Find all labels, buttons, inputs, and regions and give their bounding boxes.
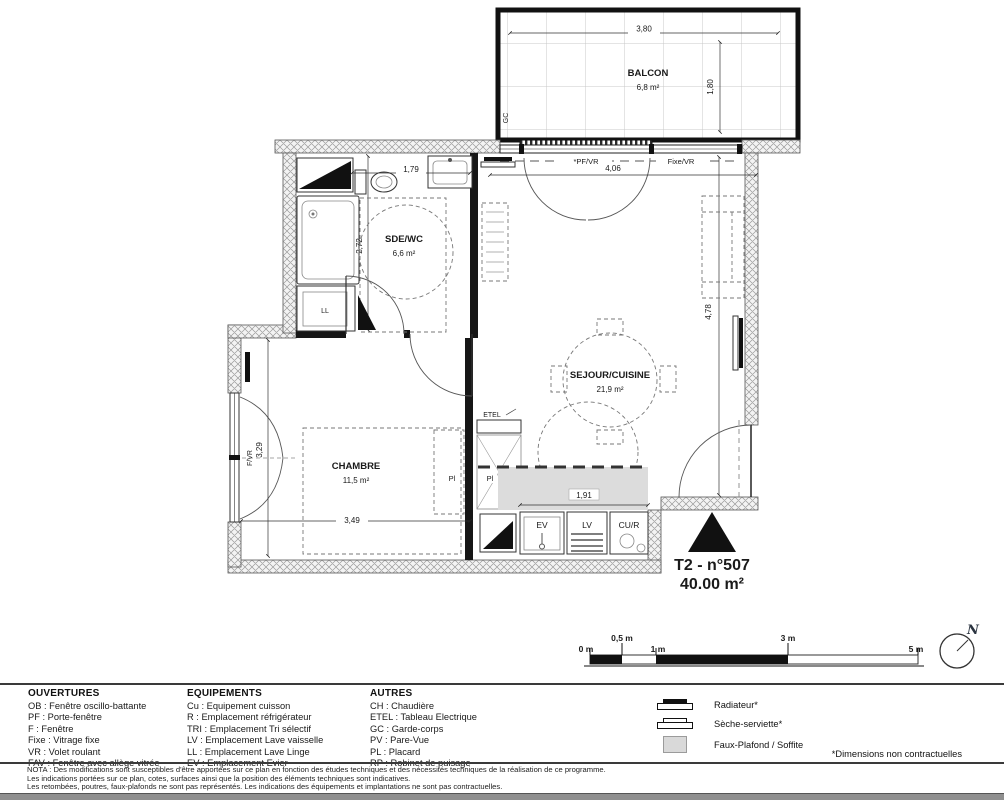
sofa xyxy=(702,196,744,298)
scale-05: 0,5 m xyxy=(611,633,633,643)
title-block: T2 - n°507 40.00 m² xyxy=(674,512,750,593)
door-swing-left xyxy=(524,158,586,220)
nota-footer: NOTA : Des modifications sont susceptibl… xyxy=(27,766,994,792)
sde-area: 6,6 m² xyxy=(393,249,416,258)
closet xyxy=(434,430,464,514)
legend-equipements: EQUIPEMENTS Cu : Equipement cuisson R : … xyxy=(187,688,323,769)
nota-line: Les retombées, poutres, faux-plafonds ne… xyxy=(27,783,994,792)
bathroom: 1,79 2,72 SDE/WC 6,6 m² LL xyxy=(297,156,472,334)
balcony-label: BALCON xyxy=(628,68,669,79)
legend-header: EQUIPEMENTS xyxy=(187,688,323,699)
legend-header: AUTRES xyxy=(370,688,477,699)
legend-item: LL : Emplacement Lave Linge xyxy=(187,747,323,758)
legend-autres: AUTRES CH : Chaudière ETEL : Tableau Ele… xyxy=(370,688,477,769)
kitchen-dim: 1,91 xyxy=(576,491,592,500)
legend-item: VR : Volet roulant xyxy=(28,747,160,758)
false-ceiling-zone xyxy=(498,467,648,510)
dishwasher-label: LV xyxy=(582,520,592,530)
unit-number: T2 - n°507 xyxy=(674,557,750,574)
bedroom-door-swing xyxy=(410,334,472,396)
sde-width-dim: 1,79 xyxy=(403,165,419,174)
guardrail-label: GC xyxy=(503,113,510,124)
balcony-door-and-window: *PF/VR Fixe/VR 4,06 xyxy=(490,140,756,220)
chair xyxy=(597,430,623,444)
legend-item: R : Emplacement réfrigérateur xyxy=(187,712,323,723)
sde-height-dim: 2,72 xyxy=(355,238,364,254)
legend-symbol-label: Radiateur* xyxy=(714,700,758,710)
sde-label: SDE/WC xyxy=(385,234,423,245)
sejour-height-dim: 4,78 xyxy=(704,304,713,320)
balcony-width-dim: 3,80 xyxy=(636,25,652,34)
scale-bar: 0 m 0,5 m 1 m 3 m 5 m xyxy=(579,633,924,666)
balcony: 3,80 1,80 BALCON 6,8 m² GC xyxy=(498,10,798,140)
legend-item: PL : Placard xyxy=(370,747,477,758)
scale-1: 1 m xyxy=(651,644,666,654)
legend-item: Cu : Equipement cuisson xyxy=(187,701,323,712)
window-label: F/VR xyxy=(247,450,254,466)
etel-label: ETEL xyxy=(483,412,501,419)
closet-label: Pl xyxy=(449,474,456,483)
chambre-height-dim: 3,29 xyxy=(255,442,264,458)
washing-machine-label: LL xyxy=(321,308,329,315)
chair xyxy=(597,319,623,335)
fixe-vr-label: Fixe/VR xyxy=(668,157,695,166)
kitchen: 1,91 EV LV CU/R xyxy=(478,467,648,554)
dishwasher-unit xyxy=(567,512,607,554)
legend-item: GC : Garde-corps xyxy=(370,724,477,735)
bedroom: F/VR 3,29 CHAMBRE 11,5 m² 3,49 xyxy=(229,334,472,556)
legend-top-rule xyxy=(0,683,1004,685)
legend-header: OUVERTURES xyxy=(28,688,160,699)
north-label: N xyxy=(966,623,980,638)
scale-3: 3 m xyxy=(781,633,796,643)
legend-item: PF : Porte-fenêtre xyxy=(28,712,160,723)
legend: OUVERTURES OB : Fenêtre oscillo-battante… xyxy=(0,686,1004,762)
false-ceiling-icon xyxy=(663,736,687,753)
legend-item: LV : Emplacement Lave vaisselle xyxy=(187,735,323,746)
radiator xyxy=(245,352,250,382)
shower xyxy=(297,196,359,284)
chambre-label: CHAMBRE xyxy=(332,461,381,472)
unit-area: 40.00 m² xyxy=(680,576,744,593)
legend-item: TRI : Emplacement Tri sélectif xyxy=(187,724,323,735)
legend-item: F : Fenêtre xyxy=(28,724,160,735)
sejour-width-dim: 4,06 xyxy=(605,164,621,173)
cooktop-label: CU/R xyxy=(619,520,640,530)
scale-0: 0 m xyxy=(579,644,594,654)
sejour-label: SEJOUR/CUISINE xyxy=(570,370,650,381)
north-compass: N xyxy=(940,623,980,668)
legend-symbol-false-ceiling: Faux-Plafond / Soffite xyxy=(656,736,803,753)
towel-dryer-icon xyxy=(657,718,693,729)
radiator xyxy=(739,318,743,368)
legend-item: OB : Fenêtre oscillo-battante xyxy=(28,701,160,712)
sejour-area: 21,9 m² xyxy=(596,385,623,394)
legend-symbol-label: Sèche-serviette* xyxy=(714,719,782,729)
radiator xyxy=(484,157,512,161)
chair xyxy=(551,366,567,392)
legend-bottom-rule xyxy=(0,762,1004,764)
floor-plan-page: 3,80 1,80 BALCON 6,8 m² GC xyxy=(0,0,1004,800)
scale-5: 5 m xyxy=(909,644,924,654)
bottom-bar xyxy=(0,793,1004,800)
dimensions-footnote: *Dimensions non contractuelles xyxy=(832,749,962,759)
legend-symbol-towel-dryer: Sèche-serviette* xyxy=(656,718,782,729)
legend-symbol-label: Faux-Plafond / Soffite xyxy=(714,740,803,750)
chambre-area: 11,5 m² xyxy=(343,476,370,485)
floor-plan-drawing: 3,80 1,80 BALCON 6,8 m² GC xyxy=(0,0,1004,683)
legend-ouvertures: OUVERTURES OB : Fenêtre oscillo-battante… xyxy=(28,688,160,769)
legend-item: CH : Chaudière xyxy=(370,701,477,712)
closet-label: Pl xyxy=(487,474,494,483)
entrance-door-swing xyxy=(679,425,751,497)
toilet xyxy=(355,170,366,194)
legend-item: ETEL : Tableau Electrique xyxy=(370,712,477,723)
unit-marker-triangle xyxy=(688,512,736,552)
electrical-panel xyxy=(477,420,521,433)
balcony-area: 6,8 m² xyxy=(637,83,660,92)
legend-symbol-radiator: Radiateur* xyxy=(656,699,758,710)
balcony-height-dim: 1,80 xyxy=(706,79,715,95)
chambre-width-dim: 3,49 xyxy=(344,516,360,525)
legend-item: PV : Pare-Vue xyxy=(370,735,477,746)
sink-label: EV xyxy=(536,520,548,530)
pf-vr-label: *PF/VR xyxy=(573,157,599,166)
bed xyxy=(303,428,461,554)
chair xyxy=(660,366,676,392)
legend-item: Fixe : Vitrage fixe xyxy=(28,735,160,746)
radiator-icon xyxy=(657,699,693,710)
living-room: 4,78 SEJOUR/CUISINE 21,9 m² xyxy=(481,157,751,502)
